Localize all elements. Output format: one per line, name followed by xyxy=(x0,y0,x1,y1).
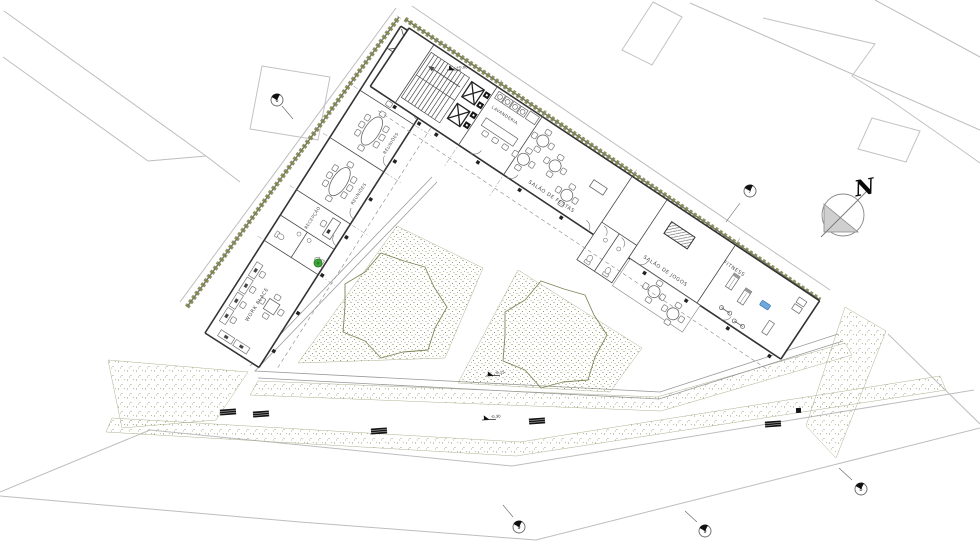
keynote-bubble: 6 xyxy=(271,94,293,119)
keynote-bubble: 9 xyxy=(685,511,711,537)
bench xyxy=(529,417,545,424)
bench xyxy=(371,427,387,434)
svg-text:-0.30: -0.30 xyxy=(491,413,502,419)
site-plan-page: WORK PLACE RECEPÇÃO REUNIÕES REUNIÕES RE… xyxy=(0,0,980,544)
svg-text:7: 7 xyxy=(748,189,751,195)
bench xyxy=(253,410,269,417)
keynote-bubble: 8 xyxy=(839,468,867,495)
bench xyxy=(765,420,781,427)
keynote-bubble: 7 xyxy=(726,185,756,222)
svg-text:-0.15: -0.15 xyxy=(495,369,506,375)
svg-text:6: 6 xyxy=(275,98,278,104)
svg-text:8: 8 xyxy=(859,487,862,493)
north-arrow: N xyxy=(821,173,878,237)
garden-bed-right xyxy=(458,270,642,392)
svg-text:9: 9 xyxy=(517,525,520,531)
plant xyxy=(314,259,322,267)
level-marker-walk-lower: -0.30 xyxy=(482,413,502,420)
trash-bin xyxy=(796,408,801,413)
north-label: N xyxy=(852,173,878,202)
site-plan-svg: WORK PLACE RECEPÇÃO REUNIÕES REUNIÕES RE… xyxy=(0,0,980,544)
bench xyxy=(220,408,236,415)
keynote-bubble: 9 xyxy=(503,505,525,533)
svg-text:+0.00: +0.00 xyxy=(456,65,468,70)
svg-text:9: 9 xyxy=(703,529,706,535)
